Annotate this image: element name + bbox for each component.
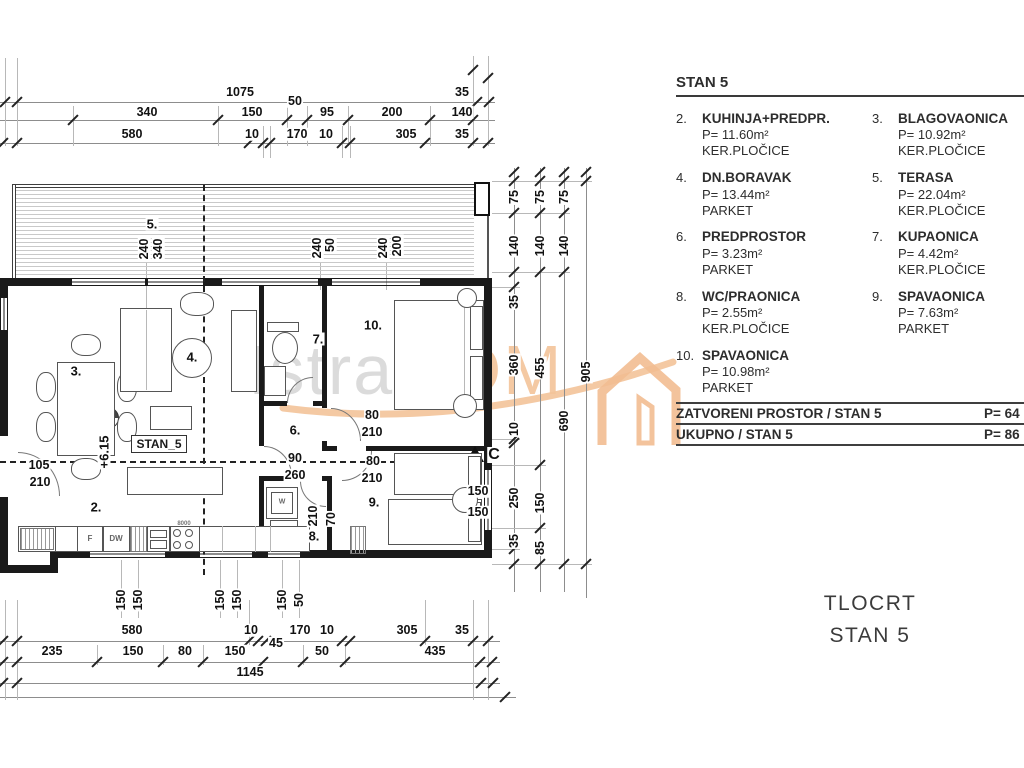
terrace-door <box>148 278 203 286</box>
wall <box>484 530 492 558</box>
radiator <box>350 526 366 554</box>
dim-label: 150 <box>467 485 490 498</box>
window <box>0 298 8 330</box>
dim-label: 80 <box>365 455 381 468</box>
chair <box>36 372 56 402</box>
nightstand <box>457 288 477 308</box>
dim-label: 250 <box>508 487 521 510</box>
wall <box>0 330 8 436</box>
legend-panel: STAN 5 2.KUHINJA+PREDPR.P= 11.60m²KER.PL… <box>676 74 1024 396</box>
total-value: P= 86 <box>984 427 1020 442</box>
dim-label: 150 <box>231 589 244 612</box>
dim-label: 210 <box>307 505 320 528</box>
room-number: 5. <box>146 218 159 231</box>
dim-label: 210 <box>29 476 52 489</box>
dim-label: 340 <box>152 238 165 261</box>
pillow <box>470 306 483 350</box>
dim-line <box>0 102 495 103</box>
dim-label: 455 <box>534 357 547 380</box>
armchair <box>180 292 214 316</box>
dim-label: 150 <box>214 589 227 612</box>
chair <box>71 334 101 356</box>
wall <box>203 278 222 286</box>
room-number: 3. <box>70 365 83 378</box>
dim-label: 105 <box>28 459 51 472</box>
dim-label: 50 <box>293 592 306 608</box>
dim-label: 35 <box>454 624 470 637</box>
dim-line <box>0 662 500 663</box>
legend-item: 8.WC/PRAONICAP= 2.55m²KER.PLOČICE <box>676 289 872 337</box>
dim-label: 170 <box>286 128 309 141</box>
chair <box>36 412 56 442</box>
divider <box>676 95 1024 97</box>
dim-label: 690 <box>558 410 571 433</box>
dim-label: 150 <box>122 645 145 658</box>
dim-label: 10 <box>508 421 521 437</box>
window <box>222 278 318 286</box>
drawing-title-line1: TLOCRT <box>790 588 950 620</box>
legend-item: 5.TERASAP= 22.04m²KER.PLOČICE <box>872 170 1024 218</box>
dim-label: 10 <box>318 128 334 141</box>
dim-label: 85 <box>534 540 547 556</box>
dim-label: 150 <box>467 506 490 519</box>
dim-label: 235 <box>41 645 64 658</box>
legend-item: 4.DN.BORAVAKP= 13.44m²PARKET <box>676 170 872 218</box>
unit-label: STAN_5 <box>136 437 181 451</box>
level-label: +6.15 <box>98 435 111 470</box>
coffee-table <box>150 406 192 430</box>
tv-cabinet <box>231 310 257 392</box>
wall <box>259 406 264 446</box>
drainer <box>130 526 147 552</box>
dim-label: 260 <box>284 469 307 482</box>
wall <box>322 446 337 451</box>
window <box>332 278 420 286</box>
room-number: 2. <box>90 501 103 514</box>
door-arc <box>300 481 326 507</box>
dim-label: 150 <box>276 589 289 612</box>
dim-label: 50 <box>287 95 303 108</box>
washer-label: W <box>278 499 287 506</box>
wall <box>0 278 8 298</box>
toilet <box>272 332 298 364</box>
dim-label: 435 <box>424 645 447 658</box>
terrace-hatch <box>16 190 474 278</box>
dim-label: 905 <box>580 361 593 384</box>
dim-line <box>0 697 516 698</box>
dim-label: 140 <box>558 235 571 258</box>
dim-label: 580 <box>121 128 144 141</box>
stove-label: 8000 <box>176 521 191 527</box>
nightstand <box>453 394 477 418</box>
dim-label: 150 <box>224 645 247 658</box>
dim-label: 240 <box>138 238 151 261</box>
legend-item: 6.PREDPROSTORP= 3.23m²PARKET <box>676 229 872 277</box>
dim-label: 240 <box>311 237 324 260</box>
dim-label: 200 <box>381 106 404 119</box>
fridge-label: F <box>87 535 94 543</box>
dim-label: 50 <box>324 237 337 253</box>
legend-item: 9.SPAVAONICAP= 7.63m²PARKET <box>872 289 1024 337</box>
dim-label: 305 <box>395 128 418 141</box>
legend-item: 10.SPAVAONICAP= 10.98m²PARKET <box>676 348 872 396</box>
dim-label: 95 <box>319 106 335 119</box>
terrace-parapet <box>12 184 490 188</box>
pillow <box>470 356 483 400</box>
room-number: 4. <box>186 351 199 364</box>
dim-label: 150 <box>132 589 145 612</box>
burner <box>185 541 193 549</box>
dim-label: 1145 <box>235 666 264 679</box>
dim-label: 35 <box>508 533 521 549</box>
dim-label: 200 <box>391 235 404 258</box>
dim-label: 150 <box>241 106 264 119</box>
sink-bowl <box>150 540 167 549</box>
dim-label: 35 <box>454 128 470 141</box>
toilet-tank <box>267 322 299 332</box>
sink <box>264 366 286 396</box>
wall <box>420 278 484 286</box>
dim-label: 305 <box>396 624 419 637</box>
dim-label: 360 <box>508 354 521 377</box>
dim-label: 70 <box>325 511 338 527</box>
dim-label: 45 <box>268 637 284 650</box>
dim-label: 140 <box>508 235 521 258</box>
room-number: 8. <box>308 530 321 543</box>
dim-label: 75 <box>558 189 571 205</box>
room-number: 7. <box>312 333 325 346</box>
dim-label: 35 <box>508 294 521 310</box>
dim-label: 140 <box>451 106 474 119</box>
legend-item: 7.KUPAONICAP= 4.42m²KER.PLOČICE <box>872 229 1024 277</box>
legend-totals: ZATVORENI PROSTOR / STAN 5P= 64 UKUPNO /… <box>676 402 1024 446</box>
window <box>72 278 145 286</box>
dim-label: 170 <box>289 624 312 637</box>
dim-label: 75 <box>508 189 521 205</box>
section-marker-label: C <box>487 447 501 463</box>
section-line <box>203 185 205 575</box>
wall <box>318 278 332 286</box>
unit-label-box: STAN_5 <box>131 435 187 453</box>
kitchen-island <box>127 467 223 495</box>
dim-label: 580 <box>121 624 144 637</box>
dishwasher-label: DW <box>108 535 123 543</box>
dim-label: 35 <box>454 86 470 99</box>
dim-label: 50 <box>314 645 330 658</box>
dim-label: 80 <box>364 409 380 422</box>
total-row: UKUPNO / STAN 5P= 86 <box>676 425 1024 446</box>
total-row: ZATVORENI PROSTOR / STAN 5P= 64 <box>676 404 1024 425</box>
dim-label: 1075 <box>225 86 255 99</box>
burner <box>185 529 193 537</box>
dim-label: 210 <box>361 426 384 439</box>
drawing-title-line2: STAN 5 <box>790 620 950 652</box>
burner <box>173 541 181 549</box>
room-number: 9. <box>368 496 381 509</box>
drainer <box>20 528 54 550</box>
dim-label: 140 <box>534 235 547 258</box>
floor-plan: STAN_5 107535340150509520014 <box>0 0 660 768</box>
dim-label: 10 <box>319 624 335 637</box>
wall <box>322 286 327 408</box>
room-number: 10. <box>363 319 383 332</box>
dim-label: 240 <box>377 237 390 260</box>
dim-label: 210 <box>361 472 384 485</box>
wall <box>0 497 8 573</box>
page: { "legend": { "title": "STAN 5", "items"… <box>0 0 1024 768</box>
wall <box>0 278 72 286</box>
dim-label: 150 <box>115 589 128 612</box>
dim-label: 150 <box>534 492 547 515</box>
terrace-railing <box>487 216 489 280</box>
window <box>484 470 492 530</box>
total-value: P= 64 <box>984 406 1020 421</box>
legend-title: STAN 5 <box>676 74 1024 91</box>
pillar <box>474 182 490 216</box>
legend-item: 3.BLAGOVAONICAP= 10.92m²KER.PLOČICE <box>872 111 1024 159</box>
dim-line <box>564 168 565 592</box>
wall <box>300 550 484 558</box>
drawing-title: TLOCRT STAN 5 <box>790 588 950 651</box>
legend-item: 2.KUHINJA+PREDPR.P= 11.60m²KER.PLOČICE <box>676 111 872 159</box>
dim-label: 75 <box>534 189 547 205</box>
wall <box>259 401 287 406</box>
door-arc <box>287 377 313 403</box>
burner <box>173 529 181 537</box>
door-arc <box>331 408 361 441</box>
room-number: 6. <box>289 424 302 437</box>
sink-bowl <box>150 530 167 538</box>
dim-label: 10 <box>243 624 259 637</box>
dim-line <box>0 683 500 684</box>
dim-label: 90 <box>287 452 303 465</box>
dim-label: 340 <box>136 106 159 119</box>
wall <box>484 278 492 470</box>
dim-label: 80 <box>177 645 193 658</box>
legend-items: 2.KUHINJA+PREDPR.P= 11.60m²KER.PLOČICE 3… <box>676 111 1024 396</box>
dim-label: 10 <box>244 128 260 141</box>
